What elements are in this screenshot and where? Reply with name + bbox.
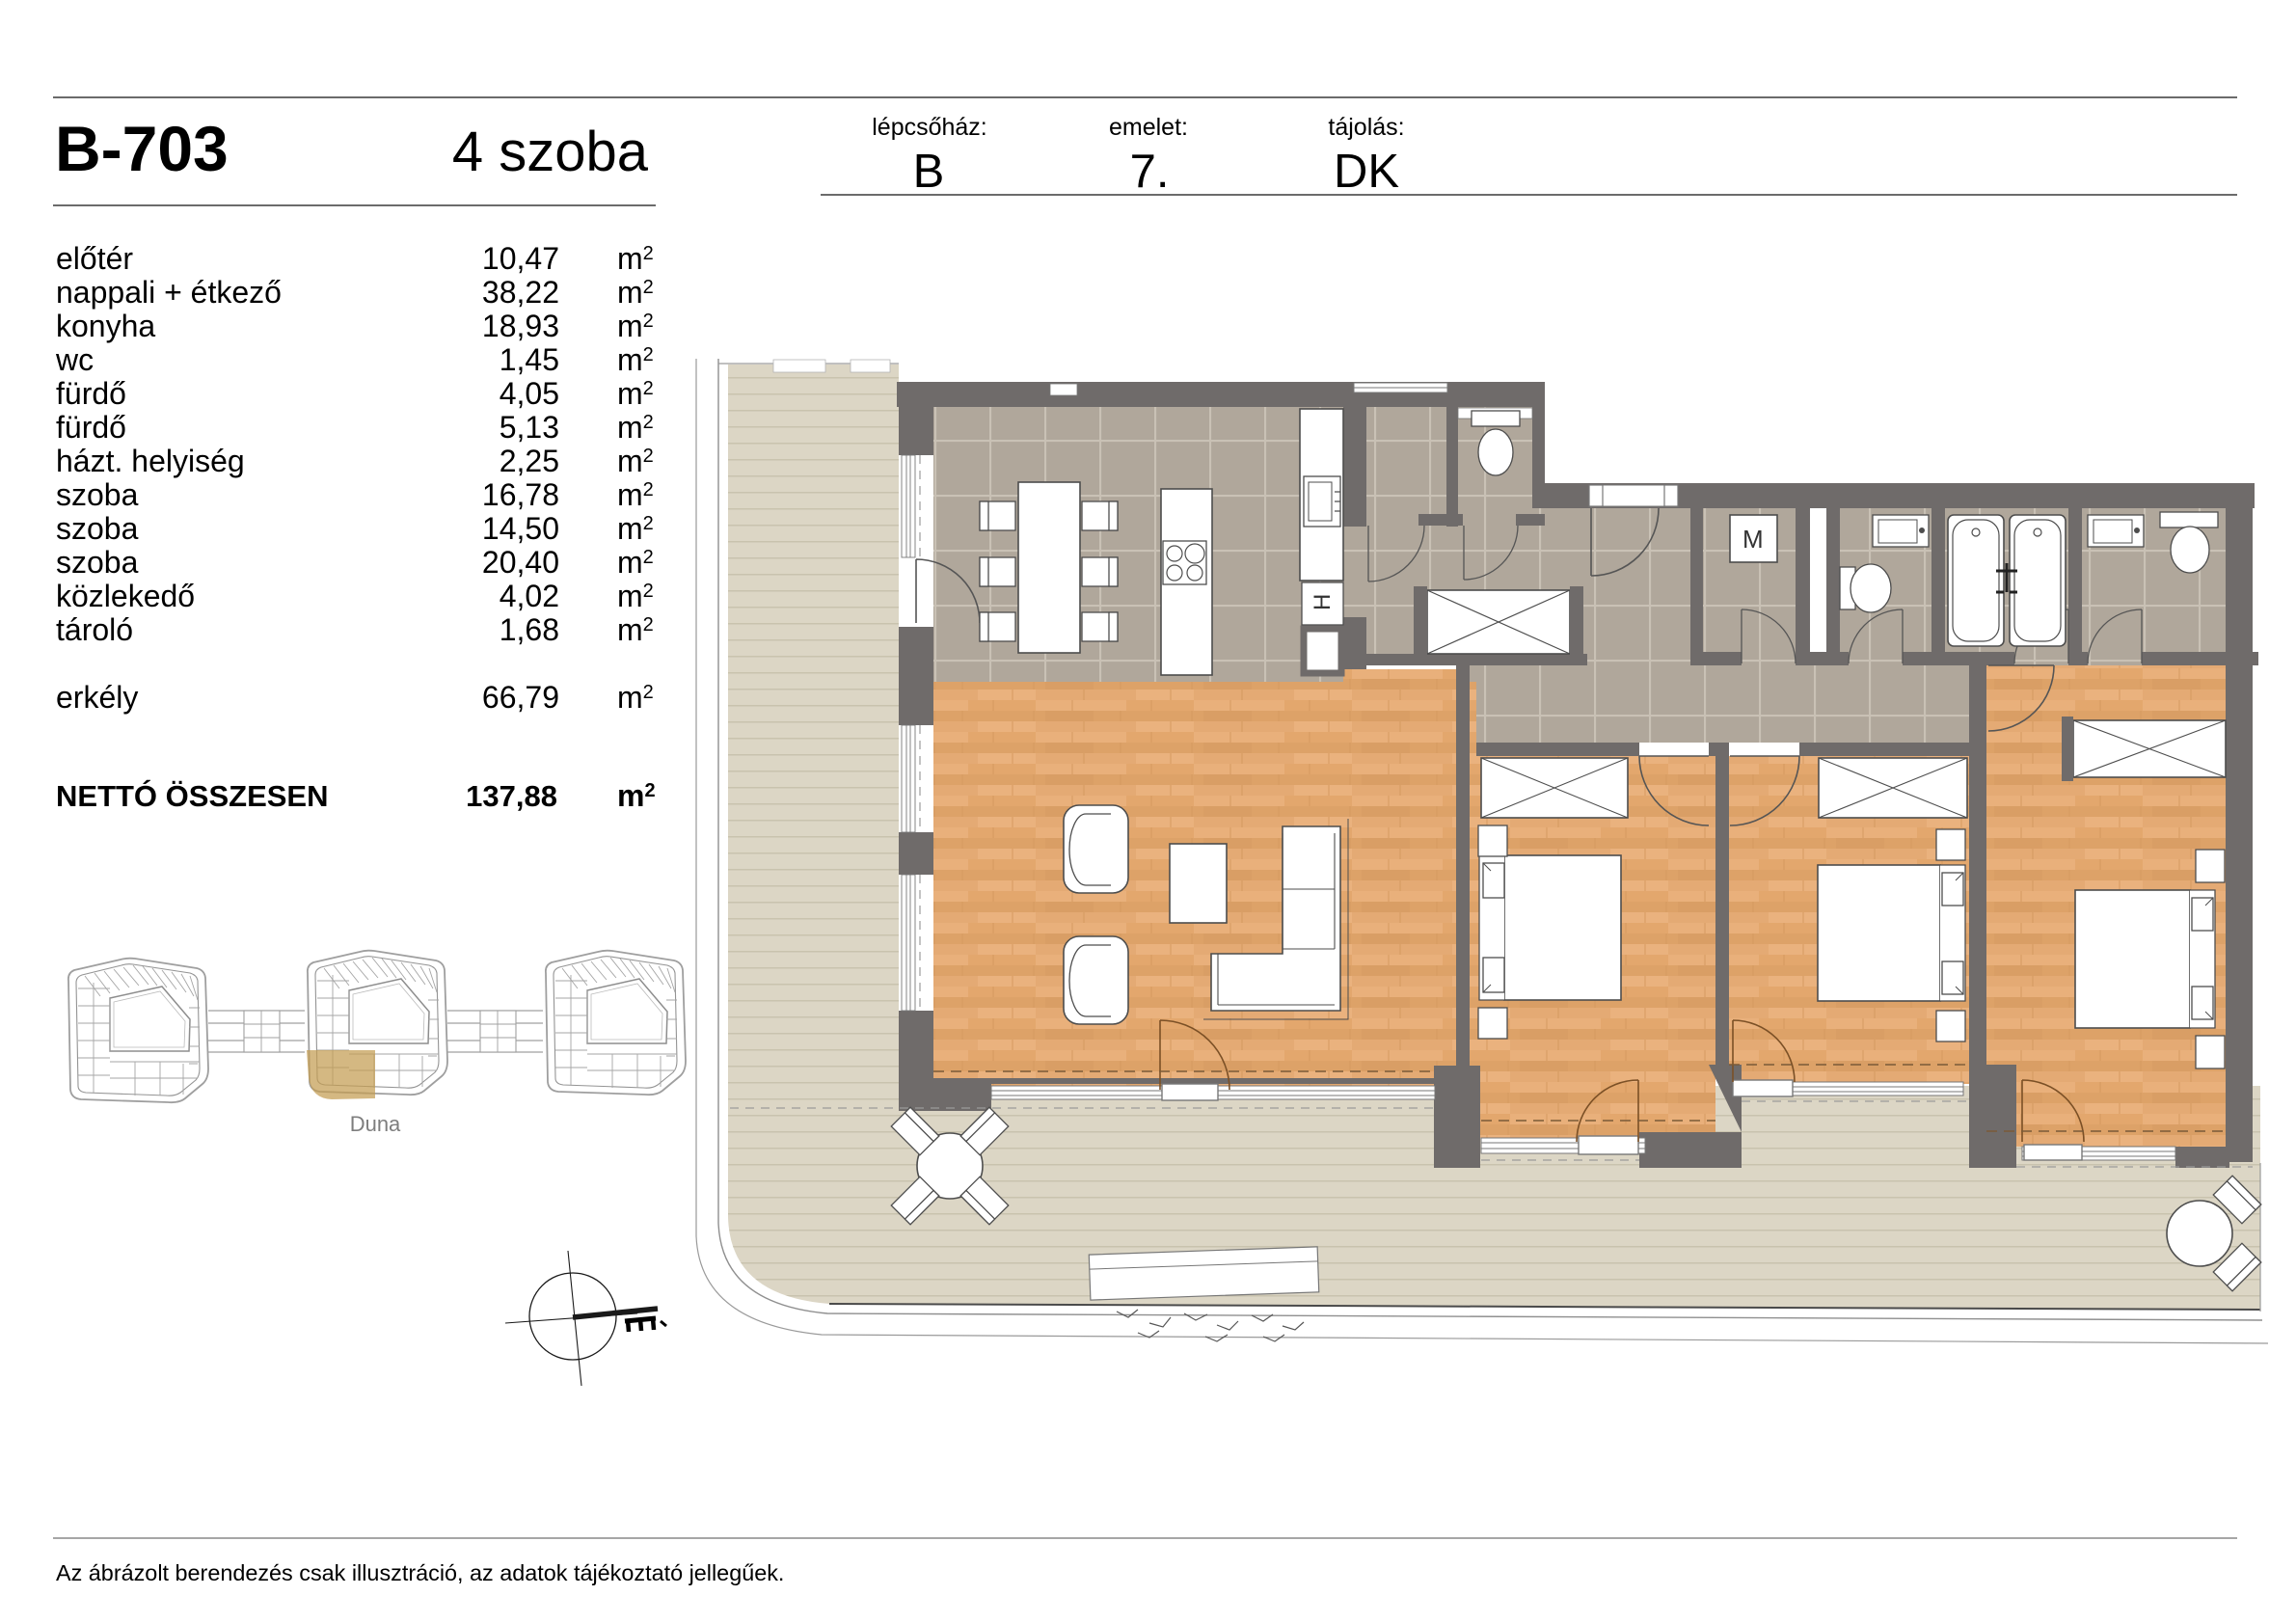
svg-text:szoba: szoba	[56, 545, 139, 580]
svg-text:2,25: 2,25	[500, 444, 559, 478]
svg-text:B-703: B-703	[55, 113, 229, 184]
svg-text:4,05: 4,05	[500, 376, 559, 411]
svg-text:Duna: Duna	[350, 1112, 401, 1136]
svg-text:18,93: 18,93	[482, 309, 559, 343]
svg-text:5,13: 5,13	[500, 410, 559, 445]
svg-text:4 szoba: 4 szoba	[452, 121, 649, 183]
svg-text:20,40: 20,40	[482, 545, 559, 580]
svg-text:szoba: szoba	[56, 477, 139, 512]
svg-text:1,68: 1,68	[500, 612, 559, 647]
svg-text:fürdő: fürdő	[56, 376, 126, 411]
svg-text:7.: 7.	[1130, 146, 1170, 198]
svg-text:emelet:: emelet:	[1109, 114, 1188, 141]
svg-text:erkély: erkély	[56, 680, 138, 715]
svg-text:tájolás:: tájolás:	[1328, 114, 1404, 141]
svg-text:4,02: 4,02	[500, 579, 559, 613]
svg-text:előtér: előtér	[56, 241, 133, 276]
svg-text:14,50: 14,50	[482, 511, 559, 546]
svg-text:házt. helyiség: házt. helyiség	[56, 444, 245, 478]
svg-text:tároló: tároló	[56, 612, 133, 647]
svg-text:nappali + étkező: nappali + étkező	[56, 275, 282, 310]
svg-text:Az ábrázolt berendezés csak il: Az ábrázolt berendezés csak illusztráció…	[56, 1560, 784, 1585]
svg-text:16,78: 16,78	[482, 477, 559, 512]
svg-text:M: M	[1742, 525, 1764, 554]
svg-text:közlekedő: közlekedő	[56, 579, 195, 613]
svg-text:B: B	[913, 146, 945, 198]
svg-text:DK: DK	[1334, 146, 1399, 198]
svg-text:1,45: 1,45	[500, 342, 559, 377]
svg-text:10,47: 10,47	[482, 241, 559, 276]
svg-text:137,88: 137,88	[466, 779, 557, 813]
svg-text:wc: wc	[55, 342, 94, 377]
svg-text:szoba: szoba	[56, 511, 139, 546]
svg-text:NETTÓ ÖSSZESEN: NETTÓ ÖSSZESEN	[56, 778, 328, 813]
svg-text:konyha: konyha	[56, 309, 155, 343]
svg-text:38,22: 38,22	[482, 275, 559, 310]
svg-text:fürdő: fürdő	[56, 410, 126, 445]
svg-text:lépcsőház:: lépcsőház:	[872, 114, 987, 141]
svg-text:66,79: 66,79	[482, 680, 559, 715]
svg-text:H: H	[1310, 594, 1336, 610]
